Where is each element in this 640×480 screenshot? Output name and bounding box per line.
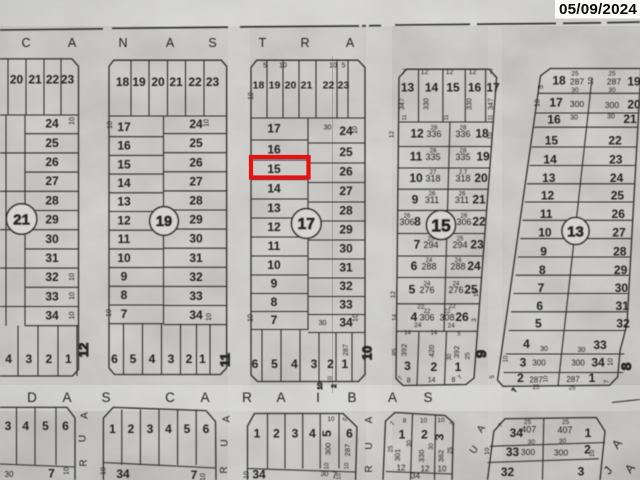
svg-text:C: C <box>165 390 175 405</box>
svg-text:25: 25 <box>339 145 353 159</box>
svg-text:12: 12 <box>410 127 424 141</box>
svg-text:A: A <box>346 36 355 50</box>
svg-text:1: 1 <box>254 427 261 441</box>
svg-text:23: 23 <box>61 73 75 87</box>
svg-text:26: 26 <box>189 155 203 169</box>
svg-text:10: 10 <box>244 471 251 479</box>
svg-text:11: 11 <box>118 232 131 246</box>
svg-text:30: 30 <box>540 346 548 353</box>
svg-text:26: 26 <box>612 207 626 221</box>
svg-text:11: 11 <box>444 115 450 121</box>
svg-text:300: 300 <box>324 443 333 456</box>
svg-text:13: 13 <box>267 201 281 215</box>
svg-text:10: 10 <box>64 467 71 475</box>
svg-text:32: 32 <box>616 317 630 331</box>
svg-text:28: 28 <box>431 126 438 132</box>
svg-text:300: 300 <box>521 447 535 457</box>
svg-text:27: 27 <box>339 184 353 198</box>
svg-text:12: 12 <box>469 69 477 76</box>
svg-text:330: 330 <box>467 98 474 110</box>
svg-text:1: 1 <box>109 422 116 436</box>
svg-text:R: R <box>300 36 309 50</box>
svg-text:11: 11 <box>488 115 494 121</box>
svg-text:10: 10 <box>69 292 76 300</box>
svg-text:26: 26 <box>404 214 411 220</box>
svg-text:5: 5 <box>409 283 416 297</box>
svg-text:34: 34 <box>252 468 266 480</box>
svg-text:33: 33 <box>506 445 520 459</box>
svg-text:30: 30 <box>570 115 578 122</box>
svg-text:3: 3 <box>147 422 154 436</box>
svg-text:R: R <box>219 466 230 473</box>
svg-text:25: 25 <box>571 71 579 78</box>
svg-text:13: 13 <box>567 223 584 240</box>
svg-text:3: 3 <box>25 352 32 366</box>
svg-text:30: 30 <box>319 320 327 327</box>
svg-text:10: 10 <box>437 417 445 424</box>
svg-text:12: 12 <box>117 213 131 227</box>
svg-text:22: 22 <box>449 303 457 310</box>
svg-text:10: 10 <box>248 92 255 100</box>
svg-text:7: 7 <box>402 69 406 76</box>
svg-text:6: 6 <box>346 427 353 441</box>
svg-text:287: 287 <box>343 444 352 457</box>
svg-text:25: 25 <box>389 445 395 452</box>
svg-text:25: 25 <box>611 189 625 203</box>
svg-text:17: 17 <box>267 122 281 136</box>
svg-text:11: 11 <box>268 239 281 253</box>
svg-text:6: 6 <box>203 422 210 436</box>
svg-text:24: 24 <box>424 282 431 288</box>
svg-text:2: 2 <box>331 384 338 388</box>
svg-text:31: 31 <box>616 299 630 313</box>
svg-text:20: 20 <box>285 80 297 92</box>
svg-text:U: U <box>78 435 89 442</box>
svg-text:8: 8 <box>407 378 411 385</box>
svg-text:32: 32 <box>45 270 59 284</box>
svg-text:30: 30 <box>447 353 453 360</box>
svg-text:300: 300 <box>532 359 546 368</box>
svg-text:13: 13 <box>401 81 415 95</box>
svg-text:22: 22 <box>424 309 431 315</box>
svg-text:28: 28 <box>430 149 437 155</box>
svg-text:12: 12 <box>421 69 429 76</box>
svg-text:16: 16 <box>468 81 482 95</box>
svg-text:2: 2 <box>327 357 334 371</box>
svg-text:14: 14 <box>543 153 557 167</box>
svg-text:1: 1 <box>199 352 206 366</box>
svg-text:32: 32 <box>189 270 203 284</box>
svg-text:420: 420 <box>427 345 436 358</box>
svg-text:10: 10 <box>325 462 331 469</box>
svg-text:4: 4 <box>22 419 29 433</box>
svg-text:21: 21 <box>28 73 42 87</box>
svg-text:U: U <box>220 439 231 446</box>
svg-text:18: 18 <box>552 74 566 88</box>
svg-text:16: 16 <box>267 143 281 157</box>
svg-text:7: 7 <box>414 238 421 252</box>
svg-text:1: 1 <box>65 352 72 366</box>
svg-text:S: S <box>101 390 110 405</box>
svg-text:D: D <box>27 390 37 405</box>
svg-text:A: A <box>276 390 285 405</box>
svg-text:287: 287 <box>529 376 543 385</box>
svg-text:12: 12 <box>541 189 555 203</box>
svg-text:5: 5 <box>535 317 542 331</box>
svg-text:22: 22 <box>417 304 425 311</box>
svg-text:34: 34 <box>45 309 59 323</box>
svg-text:16: 16 <box>547 113 561 127</box>
svg-text:10: 10 <box>329 63 337 70</box>
svg-text:25: 25 <box>448 447 454 454</box>
svg-text:392: 392 <box>399 344 408 357</box>
svg-text:4: 4 <box>309 427 316 441</box>
svg-text:10: 10 <box>69 273 76 281</box>
svg-text:25: 25 <box>562 419 570 426</box>
svg-text:347: 347 <box>488 98 495 110</box>
svg-text:20: 20 <box>474 171 488 185</box>
svg-text:14: 14 <box>404 331 411 337</box>
svg-text:6: 6 <box>111 352 118 366</box>
svg-text:3: 3 <box>5 419 12 433</box>
svg-text:11: 11 <box>540 207 553 221</box>
svg-text:2: 2 <box>46 352 53 366</box>
svg-text:300: 300 <box>571 359 585 368</box>
svg-text:28: 28 <box>460 149 467 155</box>
svg-text:10: 10 <box>101 467 108 475</box>
svg-text:R: R <box>242 390 252 405</box>
svg-text:26: 26 <box>45 155 59 169</box>
svg-text:15: 15 <box>446 81 460 95</box>
svg-text:22: 22 <box>188 75 202 89</box>
svg-text:7: 7 <box>271 313 278 327</box>
svg-text:10: 10 <box>409 171 423 185</box>
svg-text:19: 19 <box>269 80 281 92</box>
svg-text:1: 1 <box>341 357 348 371</box>
svg-text:10: 10 <box>69 312 76 320</box>
svg-text:7: 7 <box>121 307 128 321</box>
svg-text:23: 23 <box>609 153 623 167</box>
svg-text:25: 25 <box>533 385 540 391</box>
svg-text:T: T <box>259 36 267 50</box>
svg-text:24: 24 <box>447 323 455 330</box>
svg-text:20: 20 <box>151 75 165 89</box>
svg-text:30: 30 <box>578 347 586 354</box>
svg-text:30: 30 <box>339 242 353 256</box>
svg-text:10: 10 <box>589 450 596 458</box>
svg-text:24: 24 <box>610 171 624 185</box>
svg-text:33: 33 <box>339 298 353 312</box>
svg-text:33: 33 <box>189 289 203 303</box>
svg-text:26: 26 <box>429 192 436 198</box>
svg-text:28: 28 <box>460 126 467 132</box>
svg-text:21: 21 <box>301 80 313 92</box>
svg-text:30: 30 <box>615 281 629 295</box>
svg-text:33: 33 <box>593 338 607 352</box>
svg-text:24: 24 <box>189 117 203 131</box>
svg-text:22: 22 <box>46 73 60 87</box>
svg-text:17: 17 <box>117 120 131 134</box>
svg-text:15: 15 <box>545 134 559 148</box>
svg-text:23: 23 <box>206 75 220 89</box>
svg-text:12: 12 <box>473 289 480 297</box>
svg-text:8: 8 <box>403 418 407 425</box>
svg-text:A: A <box>222 415 233 422</box>
svg-text:23: 23 <box>470 238 484 252</box>
svg-text:25: 25 <box>189 136 203 150</box>
svg-text:28: 28 <box>189 194 203 208</box>
svg-text:10: 10 <box>337 473 343 480</box>
svg-text:11: 11 <box>410 150 423 164</box>
svg-text:34: 34 <box>411 472 420 480</box>
svg-text:A: A <box>166 36 175 50</box>
svg-text:U: U <box>364 442 375 449</box>
svg-text:12: 12 <box>421 465 430 474</box>
svg-text:28: 28 <box>613 245 627 259</box>
svg-text:24: 24 <box>453 282 460 288</box>
svg-text:29: 29 <box>45 213 59 227</box>
svg-text:10: 10 <box>317 382 324 390</box>
svg-text:13: 13 <box>542 171 556 185</box>
svg-text:12: 12 <box>397 464 406 473</box>
svg-text:4: 4 <box>165 422 172 436</box>
svg-text:5: 5 <box>130 352 137 366</box>
svg-text:8: 8 <box>539 263 546 277</box>
svg-text:30: 30 <box>559 438 567 445</box>
svg-text:A: A <box>68 36 77 50</box>
svg-text:25: 25 <box>45 136 59 150</box>
svg-text:330: 330 <box>424 98 431 110</box>
svg-text:27: 27 <box>612 226 626 240</box>
svg-text:24: 24 <box>426 258 433 264</box>
svg-text:15: 15 <box>117 157 131 171</box>
svg-text:10: 10 <box>544 375 550 382</box>
svg-text:A: A <box>388 390 397 405</box>
svg-text:S: S <box>423 390 432 405</box>
svg-text:12: 12 <box>76 343 91 357</box>
svg-text:25: 25 <box>524 419 532 426</box>
svg-text:19: 19 <box>132 75 146 89</box>
svg-text:10: 10 <box>106 309 113 317</box>
svg-text:34: 34 <box>189 308 203 322</box>
svg-text:10: 10 <box>353 314 360 322</box>
svg-text:407: 407 <box>557 425 572 435</box>
svg-text:10: 10 <box>608 358 615 366</box>
svg-text:3: 3 <box>292 427 299 441</box>
svg-text:A: A <box>364 416 375 423</box>
svg-text:10: 10 <box>200 473 207 480</box>
svg-text:29: 29 <box>189 213 203 227</box>
svg-text:392: 392 <box>452 346 461 359</box>
svg-text:17: 17 <box>486 81 500 95</box>
svg-text:1: 1 <box>399 428 406 442</box>
svg-text:19: 19 <box>476 150 490 164</box>
svg-text:5: 5 <box>184 422 191 436</box>
svg-text:34: 34 <box>591 356 605 370</box>
svg-text:3: 3 <box>520 356 527 370</box>
svg-text:27: 27 <box>430 170 437 176</box>
svg-text:27: 27 <box>189 174 203 188</box>
svg-text:30: 30 <box>189 232 203 246</box>
svg-text:2: 2 <box>421 428 428 442</box>
svg-text:19: 19 <box>627 75 640 89</box>
svg-text:10: 10 <box>487 132 494 140</box>
svg-text:26: 26 <box>459 192 466 198</box>
svg-text:9: 9 <box>412 193 419 207</box>
svg-text:11: 11 <box>402 115 408 121</box>
svg-text:10: 10 <box>360 346 375 360</box>
svg-text:15: 15 <box>431 215 451 235</box>
svg-text:9: 9 <box>473 350 490 358</box>
svg-text:7: 7 <box>191 468 198 480</box>
svg-text:10: 10 <box>588 77 595 85</box>
svg-text:19: 19 <box>156 214 172 230</box>
svg-text:6: 6 <box>252 357 259 371</box>
svg-text:25: 25 <box>464 352 471 360</box>
svg-text:12: 12 <box>390 291 397 299</box>
svg-text:21: 21 <box>169 75 183 89</box>
svg-text:6: 6 <box>411 259 418 273</box>
svg-text:26: 26 <box>461 214 468 220</box>
svg-text:23: 23 <box>338 80 350 92</box>
svg-text:15: 15 <box>267 162 281 176</box>
svg-text:10: 10 <box>345 462 351 469</box>
svg-text:3: 3 <box>404 359 411 373</box>
svg-text:29: 29 <box>614 263 628 277</box>
svg-text:2: 2 <box>273 427 280 441</box>
svg-text:30: 30 <box>528 439 536 446</box>
svg-text:29: 29 <box>339 223 353 237</box>
svg-text:5: 5 <box>342 63 346 70</box>
svg-text:30: 30 <box>321 471 329 478</box>
svg-text:2: 2 <box>517 371 524 385</box>
svg-text:287: 287 <box>570 77 584 87</box>
svg-text:5: 5 <box>42 419 49 433</box>
svg-text:300: 300 <box>554 448 568 458</box>
svg-text:20: 20 <box>10 73 24 87</box>
svg-text:21: 21 <box>623 112 637 126</box>
svg-text:13: 13 <box>117 195 131 209</box>
svg-text:10: 10 <box>504 355 510 362</box>
svg-text:30: 30 <box>608 87 616 94</box>
svg-text:32: 32 <box>501 465 515 479</box>
svg-text:34: 34 <box>339 316 353 330</box>
svg-text:14: 14 <box>425 81 439 95</box>
svg-text:3: 3 <box>168 352 175 366</box>
svg-text:300: 300 <box>605 100 619 110</box>
svg-text:4: 4 <box>5 352 12 366</box>
svg-text:11: 11 <box>218 353 233 367</box>
svg-text:2: 2 <box>186 352 193 366</box>
svg-text:21: 21 <box>472 193 486 207</box>
svg-text:16: 16 <box>117 139 131 153</box>
svg-text:12: 12 <box>389 131 396 139</box>
svg-text:7: 7 <box>538 281 545 295</box>
svg-text:17: 17 <box>549 96 563 110</box>
svg-text:31: 31 <box>45 251 59 265</box>
svg-text:10: 10 <box>352 126 359 134</box>
svg-text:5: 5 <box>320 430 334 437</box>
svg-text:26: 26 <box>339 165 353 179</box>
svg-text:25: 25 <box>569 386 576 392</box>
svg-text:18: 18 <box>253 80 265 92</box>
svg-text:1: 1 <box>585 426 592 440</box>
svg-text:R: R <box>364 465 375 472</box>
svg-text:1: 1 <box>589 371 596 385</box>
svg-text:21: 21 <box>13 211 30 228</box>
svg-text:30: 30 <box>429 443 435 450</box>
svg-text:A: A <box>80 412 91 419</box>
svg-text:10: 10 <box>279 63 287 70</box>
svg-text:287: 287 <box>343 344 350 356</box>
svg-text:85: 85 <box>392 348 399 356</box>
svg-text:2.7: 2.7 <box>459 170 468 176</box>
svg-text:10: 10 <box>328 376 334 383</box>
svg-text:18: 18 <box>116 75 130 89</box>
svg-text:3: 3 <box>578 465 585 479</box>
svg-text:10: 10 <box>248 314 255 322</box>
svg-text:8: 8 <box>271 295 278 309</box>
svg-text:3: 3 <box>471 318 478 322</box>
svg-text:10: 10 <box>267 258 281 272</box>
svg-text:10: 10 <box>484 447 491 455</box>
svg-text:6: 6 <box>536 299 543 313</box>
svg-text:362: 362 <box>437 450 446 463</box>
svg-text:30: 30 <box>324 125 332 132</box>
svg-text:24: 24 <box>467 259 481 273</box>
svg-text:33: 33 <box>45 289 59 303</box>
svg-text:34: 34 <box>116 467 130 480</box>
svg-text:B: B <box>347 390 356 405</box>
svg-text:8: 8 <box>618 362 634 370</box>
svg-text:3: 3 <box>433 433 447 440</box>
svg-text:14: 14 <box>267 182 281 196</box>
svg-text:10: 10 <box>206 313 213 321</box>
svg-text:5: 5 <box>263 63 267 70</box>
svg-text:A: A <box>200 390 209 405</box>
svg-text:6: 6 <box>62 419 69 433</box>
svg-text:30: 30 <box>5 470 14 479</box>
svg-text:2: 2 <box>431 360 438 374</box>
svg-text:1: 1 <box>455 360 462 374</box>
svg-text:287: 287 <box>566 375 580 384</box>
svg-text:7: 7 <box>48 467 55 480</box>
svg-text:S: S <box>208 36 216 50</box>
svg-text:I: I <box>316 390 320 405</box>
svg-text:32: 32 <box>339 279 353 293</box>
svg-text:28: 28 <box>45 193 59 207</box>
svg-text:14: 14 <box>428 377 436 384</box>
svg-text:31: 31 <box>189 251 203 265</box>
svg-text:22: 22 <box>323 80 335 92</box>
svg-text:30: 30 <box>571 87 579 94</box>
svg-text:287: 287 <box>607 77 621 87</box>
svg-text:14: 14 <box>431 331 438 337</box>
svg-text:14: 14 <box>117 176 131 190</box>
svg-text:20: 20 <box>627 98 640 112</box>
svg-text:22: 22 <box>472 215 486 229</box>
svg-text:10: 10 <box>117 251 131 265</box>
svg-text:24: 24 <box>339 124 353 138</box>
svg-text:5: 5 <box>271 357 278 371</box>
svg-text:2: 2 <box>128 422 135 436</box>
svg-text:10: 10 <box>538 226 552 240</box>
svg-text:24: 24 <box>455 258 462 264</box>
svg-text:8: 8 <box>414 215 421 229</box>
svg-text:10: 10 <box>204 119 211 127</box>
svg-text:17: 17 <box>298 216 315 233</box>
svg-text:C: C <box>21 36 30 50</box>
